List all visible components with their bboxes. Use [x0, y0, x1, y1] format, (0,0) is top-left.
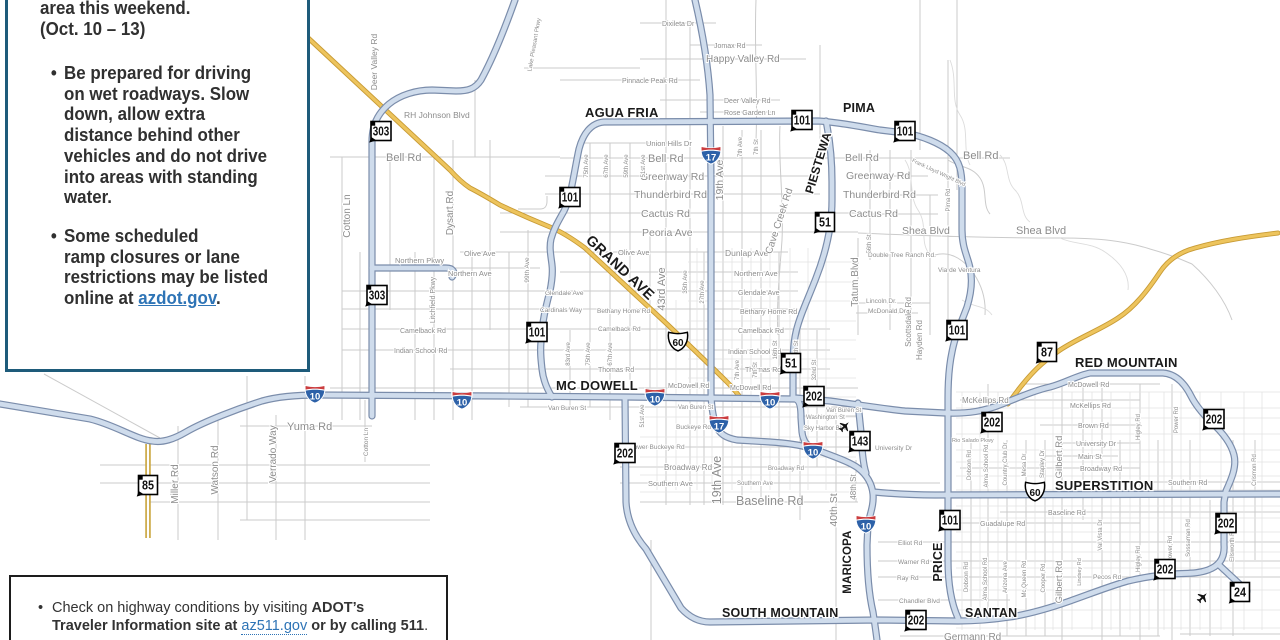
svg-text:59th Ave: 59th Ave	[624, 154, 630, 178]
svg-text:Broadway Rd: Broadway Rd	[768, 466, 804, 472]
svg-text:McDowell Rd: McDowell Rd	[1068, 382, 1109, 389]
svg-text:Van Buren St: Van Buren St	[678, 405, 714, 411]
svg-text:Greenway Rd: Greenway Rd	[846, 170, 910, 182]
svg-text:GRAND AVE: GRAND AVE	[582, 232, 657, 303]
svg-text:Baseline Rd: Baseline Rd	[736, 494, 803, 508]
svg-text:Thunderbird Rd: Thunderbird Rd	[843, 189, 916, 201]
svg-text:Broadway Rd: Broadway Rd	[664, 463, 712, 472]
svg-text:Main St: Main St	[1078, 454, 1102, 461]
svg-text:48th St: 48th St	[849, 474, 858, 500]
svg-text:101: 101	[562, 191, 579, 205]
svg-text:Olive Ave: Olive Ave	[464, 249, 496, 258]
svg-text:Greenway Rd: Greenway Rd	[640, 171, 704, 183]
svg-text:Warner Rd: Warner Rd	[898, 559, 930, 566]
svg-text:Indian School Rd: Indian School Rd	[394, 348, 447, 355]
svg-text:Mesa Dr: Mesa Dr	[1022, 454, 1028, 477]
svg-text:Jomax Rd: Jomax Rd	[714, 43, 746, 50]
svg-text:10: 10	[808, 447, 819, 458]
svg-text:56th St: 56th St	[867, 234, 873, 253]
svg-text:Dobson Rd: Dobson Rd	[967, 450, 973, 480]
svg-text:University Dr: University Dr	[1076, 441, 1117, 448]
svg-text:16th St: 16th St	[773, 340, 779, 359]
svg-text:Buckeye Rd: Buckeye Rd	[676, 424, 711, 431]
svg-text:Val Vista Dr: Val Vista Dr	[1098, 519, 1104, 550]
svg-text:Rio Salado Pkwy: Rio Salado Pkwy	[952, 438, 994, 444]
svg-text:McDowell Rd: McDowell Rd	[668, 383, 709, 390]
svg-text:7th Ave: 7th Ave	[735, 359, 741, 380]
svg-text:Higley Rd: Higley Rd	[1136, 414, 1142, 440]
svg-text:202: 202	[806, 390, 823, 404]
svg-text:202: 202	[984, 416, 1001, 430]
svg-text:Country Club Dr: Country Club Dr	[1003, 442, 1009, 485]
svg-text:101: 101	[897, 125, 914, 139]
svg-text:17: 17	[706, 152, 717, 163]
svg-text:Brown Rd: Brown Rd	[1078, 423, 1109, 430]
svg-text:Sossaman Rd: Sossaman Rd	[1186, 519, 1192, 557]
svg-text:Union Hills Dr: Union Hills Dr	[646, 139, 692, 148]
svg-text:Peoria Ave: Peoria Ave	[642, 227, 693, 239]
svg-text:McKellips Rd: McKellips Rd	[962, 396, 1009, 405]
svg-text:101: 101	[794, 114, 811, 128]
svg-text:67th Ave: 67th Ave	[604, 154, 610, 178]
svg-text:51st Ave: 51st Ave	[640, 404, 646, 428]
svg-text:Glendale Ave: Glendale Ave	[738, 290, 780, 297]
svg-text:Thomas Rd: Thomas Rd	[745, 367, 781, 374]
svg-text:17: 17	[714, 421, 725, 432]
svg-text:Pima Rd: Pima Rd	[946, 188, 952, 211]
svg-text:Gilbert Rd: Gilbert Rd	[1054, 436, 1065, 479]
svg-text:Gilbert Rd: Gilbert Rd	[1054, 561, 1065, 604]
svg-text:60: 60	[1029, 488, 1041, 499]
svg-text:83rd Ave: 83rd Ave	[566, 342, 572, 366]
svg-text:Alma School Rd: Alma School Rd	[984, 444, 990, 487]
svg-text:PRICE: PRICE	[931, 542, 945, 581]
svg-text:Litchfield Pkwy: Litchfield Pkwy	[430, 276, 437, 323]
svg-text:7th Ave: 7th Ave	[738, 136, 744, 157]
svg-text:202: 202	[908, 614, 925, 628]
svg-text:Dobson Rd: Dobson Rd	[964, 562, 970, 592]
svg-text:Dysart Rd: Dysart Rd	[445, 191, 456, 235]
svg-text:40th St: 40th St	[828, 493, 840, 526]
svg-text:Cactus Rd: Cactus Rd	[641, 208, 690, 220]
svg-text:MC DOWELL: MC DOWELL	[556, 378, 638, 393]
svg-text:Power Rd: Power Rd	[1174, 407, 1180, 433]
svg-text:Bethany Home Rd: Bethany Home Rd	[740, 309, 797, 316]
svg-text:Lincoln Dr.: Lincoln Dr.	[866, 298, 897, 305]
svg-text:Tatum Blvd: Tatum Blvd	[850, 257, 861, 306]
svg-text:303: 303	[373, 125, 390, 139]
svg-text:Germann Rd: Germann Rd	[944, 632, 1001, 640]
svg-text:Camelback Rd: Camelback Rd	[738, 328, 784, 335]
svg-text:Dixileta Dr: Dixileta Dr	[662, 21, 695, 28]
svg-text:Chandler Blvd: Chandler Blvd	[899, 598, 940, 605]
svg-text:Ray Rd: Ray Rd	[897, 575, 919, 582]
svg-text:Higley Rd: Higley Rd	[1136, 546, 1142, 572]
svg-text:Double Tree Ranch Rd.: Double Tree Ranch Rd.	[868, 252, 936, 259]
svg-text:Stapley Dr: Stapley Dr	[1040, 450, 1046, 478]
svg-text:Southern Rd: Southern Rd	[1168, 480, 1207, 487]
svg-text:Washington St: Washington St	[806, 415, 845, 421]
svg-text:Deer Valley Rd: Deer Valley Rd	[369, 33, 379, 90]
svg-text:10: 10	[861, 521, 872, 532]
svg-text:Crismon Rd: Crismon Rd	[1252, 454, 1258, 486]
svg-text:Watson Rd: Watson Rd	[210, 445, 221, 494]
svg-text:Lindsey Rd: Lindsey Rd	[1077, 558, 1083, 586]
svg-text:Hayden Rd: Hayden Rd	[915, 320, 924, 360]
svg-text:Southern Ave: Southern Ave	[737, 481, 774, 487]
svg-text:Guadalupe Rd: Guadalupe Rd	[980, 521, 1025, 528]
svg-text:SUPERSTITION: SUPERSTITION	[1055, 478, 1153, 493]
svg-text:24: 24	[1234, 586, 1246, 600]
svg-text:43rd Ave: 43rd Ave	[656, 267, 668, 310]
svg-text:Power Rd: Power Rd	[1168, 536, 1174, 562]
svg-text:Rose Garden Ln: Rose Garden Ln	[724, 110, 775, 117]
svg-text:Camelback Rd: Camelback Rd	[400, 328, 446, 335]
svg-text:99th Ave: 99th Ave	[524, 257, 531, 283]
svg-text:Via de Ventura: Via de Ventura	[938, 267, 981, 274]
svg-text:Cardinals Way: Cardinals Way	[540, 307, 583, 314]
svg-text:Bell Rd: Bell Rd	[963, 150, 998, 162]
svg-text:Verrado Way: Verrado Way	[268, 425, 279, 482]
svg-text:McDonald Dr.: McDonald Dr.	[868, 308, 908, 315]
svg-text:PIMA: PIMA	[843, 101, 875, 115]
svg-text:303: 303	[369, 289, 386, 303]
svg-text:Bell Rd: Bell Rd	[845, 152, 879, 164]
svg-text:67th Ave: 67th Ave	[608, 342, 614, 366]
svg-text:McDowell Rd: McDowell Rd	[730, 385, 771, 392]
svg-text:10: 10	[310, 391, 321, 402]
svg-text:Pecos Rd: Pecos Rd	[1093, 574, 1122, 581]
svg-text:19th Ave: 19th Ave	[710, 456, 724, 504]
svg-text:75th Ave: 75th Ave	[586, 342, 592, 366]
svg-text:Deer Valley Rd: Deer Valley Rd	[724, 98, 771, 105]
svg-text:SANTAN: SANTAN	[965, 606, 1017, 620]
svg-text:Alma School Rd: Alma School Rd	[983, 557, 989, 600]
svg-text:Southern Ave: Southern Ave	[648, 479, 693, 488]
svg-text:Lower Buckeye Rd: Lower Buckeye Rd	[630, 444, 685, 451]
svg-text:10: 10	[765, 397, 776, 408]
svg-text:Yuma Rd: Yuma Rd	[287, 421, 332, 433]
svg-text:Northern Ave: Northern Ave	[734, 269, 778, 278]
svg-text:51: 51	[819, 216, 831, 230]
svg-text:MARICOPA: MARICOPA	[842, 530, 854, 593]
svg-text:Pinnacle Peak Rd: Pinnacle Peak Rd	[622, 78, 678, 85]
svg-text:75th Ave: 75th Ave	[584, 154, 590, 178]
svg-text:60: 60	[672, 338, 684, 349]
svg-text:AGUA FRIA: AGUA FRIA	[585, 105, 659, 120]
svg-text:101: 101	[949, 324, 966, 338]
svg-text:35th Ave: 35th Ave	[683, 270, 689, 294]
svg-text:Dunlap Ave: Dunlap Ave	[725, 248, 769, 258]
svg-text:Shea Blvd: Shea Blvd	[902, 225, 950, 237]
svg-text:Northern Pkwy: Northern Pkwy	[395, 256, 444, 265]
svg-text:Thunderbird Rd: Thunderbird Rd	[634, 189, 707, 201]
svg-text:19th Ave: 19th Ave	[714, 160, 726, 201]
svg-text:Mc Queen Rd: Mc Queen Rd	[1022, 560, 1028, 597]
svg-text:202: 202	[1206, 413, 1223, 427]
svg-text:Arizona Ave: Arizona Ave	[1003, 560, 1009, 593]
svg-text:Elliot Rd: Elliot Rd	[898, 540, 923, 547]
svg-text:Thomas Rd: Thomas Rd	[598, 367, 634, 374]
svg-text:Baseline Rd: Baseline Rd	[1048, 510, 1086, 517]
svg-text:McKellips Rd: McKellips Rd	[1070, 403, 1111, 410]
svg-text:Cotton Ln: Cotton Ln	[363, 428, 370, 457]
svg-text:University Dr: University Dr	[875, 445, 913, 452]
svg-text:Van Buren St: Van Buren St	[826, 408, 862, 414]
svg-text:RH Johnson Blvd: RH Johnson Blvd	[404, 110, 470, 120]
svg-text:101: 101	[529, 326, 546, 340]
svg-text:Lake Pleasant Pkwy: Lake Pleasant Pkwy	[527, 18, 542, 72]
svg-text:Cotton Ln: Cotton Ln	[342, 194, 353, 237]
svg-text:Glendale Ave: Glendale Ave	[545, 290, 584, 297]
svg-text:101: 101	[942, 514, 959, 528]
svg-text:7th St: 7th St	[754, 139, 760, 155]
svg-text:32nd St: 32nd St	[812, 359, 818, 380]
svg-text:51: 51	[785, 357, 797, 371]
svg-text:Bethany Home Rd: Bethany Home Rd	[597, 308, 650, 315]
svg-text:85: 85	[142, 479, 154, 493]
svg-text:RED MOUNTAIN: RED MOUNTAIN	[1075, 355, 1178, 370]
svg-text:Cave Creek Rd: Cave Creek Rd	[764, 187, 796, 255]
svg-text:Happy Valley Rd: Happy Valley Rd	[706, 54, 780, 65]
svg-text:51st Ave: 51st Ave	[641, 154, 647, 178]
svg-text:7th St: 7th St	[753, 362, 759, 378]
svg-text:Camelback Rd: Camelback Rd	[598, 326, 641, 333]
svg-text:Olive Ave: Olive Ave	[618, 248, 650, 257]
svg-text:202: 202	[1218, 517, 1235, 531]
svg-text:10: 10	[457, 397, 468, 408]
svg-text:Shea Blvd: Shea Blvd	[1016, 225, 1066, 237]
svg-text:Cooper Rd: Cooper Rd	[1041, 563, 1047, 592]
svg-text:Scottsdale Rd: Scottsdale Rd	[904, 297, 913, 347]
svg-text:Van Buren St: Van Buren St	[548, 405, 586, 412]
svg-text:10: 10	[650, 394, 661, 405]
svg-text:202: 202	[1157, 563, 1174, 577]
svg-text:202: 202	[617, 447, 634, 461]
svg-text:Bell Rd: Bell Rd	[648, 153, 683, 165]
svg-text:Northern Ave: Northern Ave	[448, 269, 492, 278]
svg-text:Bell Rd: Bell Rd	[386, 152, 421, 164]
svg-text:27th Ave: 27th Ave	[700, 280, 706, 304]
svg-text:Broadway Rd: Broadway Rd	[1080, 466, 1122, 473]
svg-text:Cactus Rd: Cactus Rd	[849, 208, 898, 220]
svg-text:SOUTH MOUNTAIN: SOUTH MOUNTAIN	[722, 606, 838, 620]
svg-text:Miller Rd: Miller Rd	[170, 464, 181, 503]
svg-text:87: 87	[1041, 346, 1053, 360]
svg-text:143: 143	[852, 435, 869, 449]
